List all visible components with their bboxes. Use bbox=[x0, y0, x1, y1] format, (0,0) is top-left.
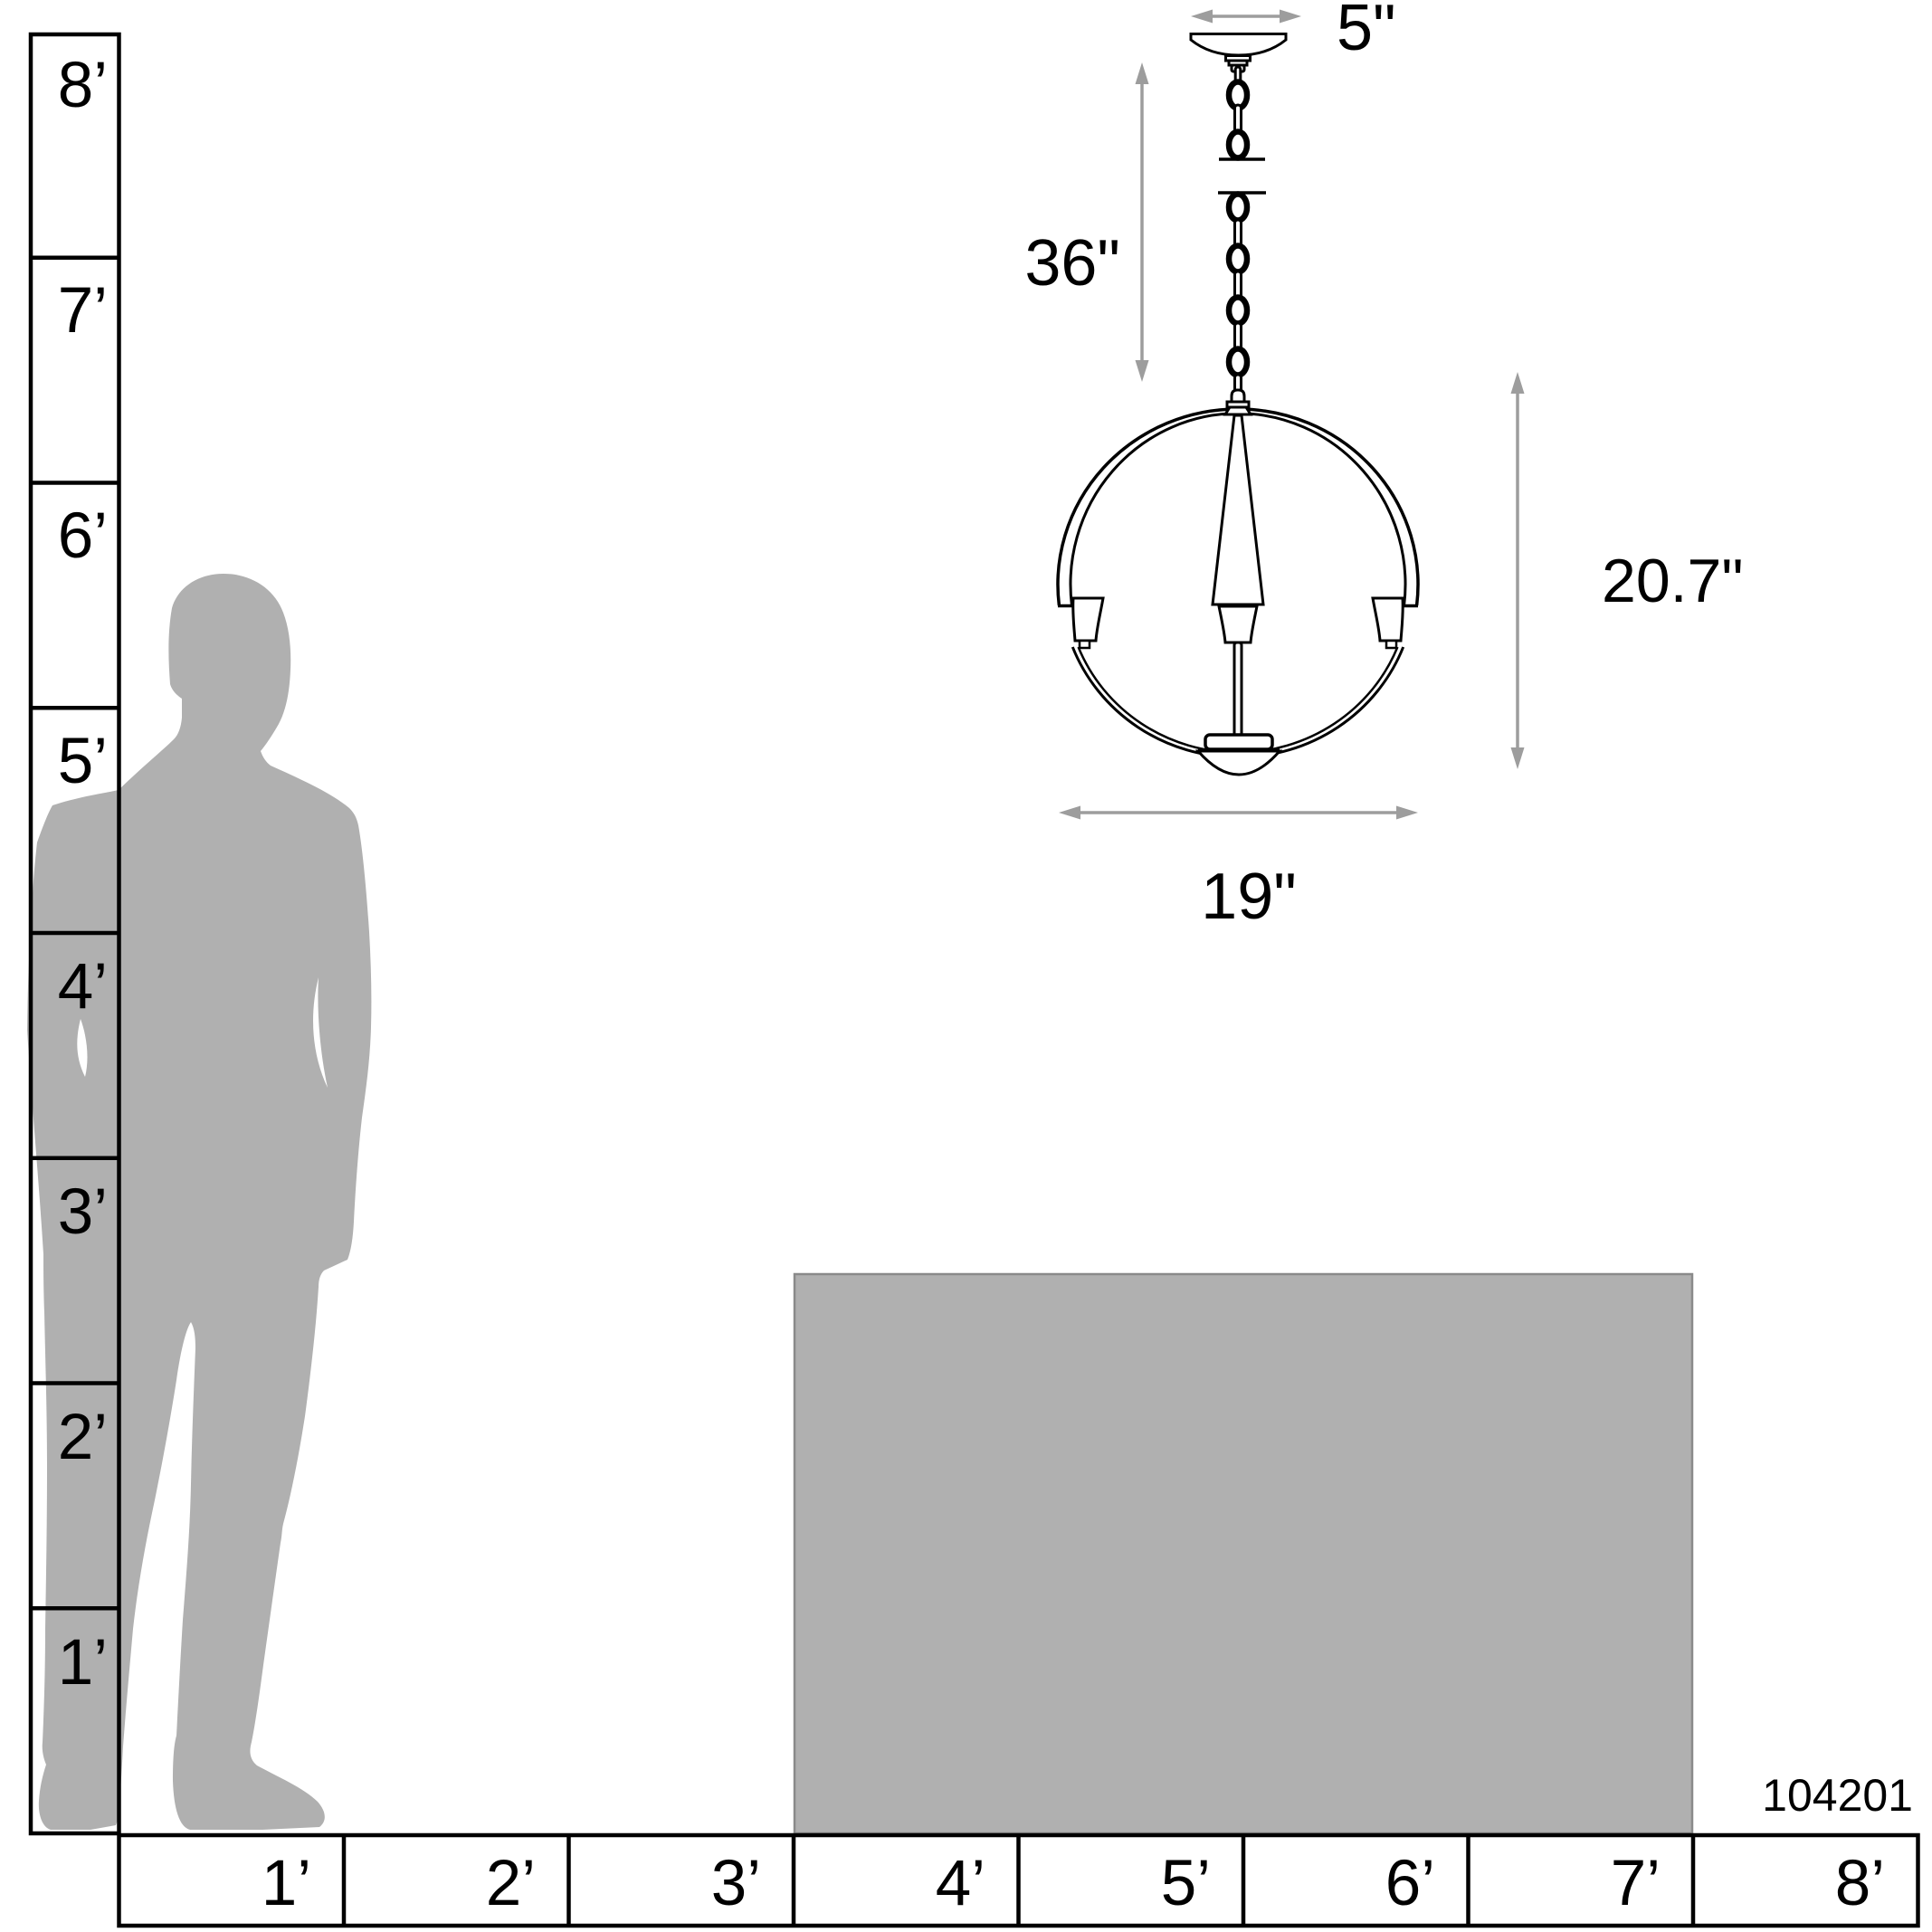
svg-text:2’: 2’ bbox=[486, 1848, 536, 1919]
svg-text:2’: 2’ bbox=[58, 1402, 108, 1473]
svg-text:104201: 104201 bbox=[1762, 1770, 1913, 1821]
svg-text:7’: 7’ bbox=[58, 275, 108, 347]
svg-text:6’: 6’ bbox=[1385, 1848, 1435, 1919]
svg-text:4’: 4’ bbox=[58, 951, 108, 1023]
svg-text:4’: 4’ bbox=[936, 1848, 985, 1919]
svg-text:19": 19" bbox=[1201, 861, 1297, 933]
svg-text:5’: 5’ bbox=[1161, 1848, 1211, 1919]
svg-text:3’: 3’ bbox=[711, 1848, 761, 1919]
svg-text:1’: 1’ bbox=[262, 1848, 311, 1919]
svg-text:7’: 7’ bbox=[1611, 1848, 1661, 1919]
svg-text:36": 36" bbox=[1024, 227, 1120, 300]
svg-text:6’: 6’ bbox=[58, 500, 108, 572]
svg-text:8’: 8’ bbox=[58, 50, 108, 121]
svg-text:20.7": 20.7" bbox=[1602, 547, 1744, 615]
svg-text:1’: 1’ bbox=[58, 1627, 108, 1699]
svg-text:5’: 5’ bbox=[58, 726, 108, 797]
svg-text:8’: 8’ bbox=[1835, 1848, 1885, 1919]
svg-text:5": 5" bbox=[1337, 0, 1396, 64]
svg-text:3’: 3’ bbox=[58, 1176, 108, 1248]
